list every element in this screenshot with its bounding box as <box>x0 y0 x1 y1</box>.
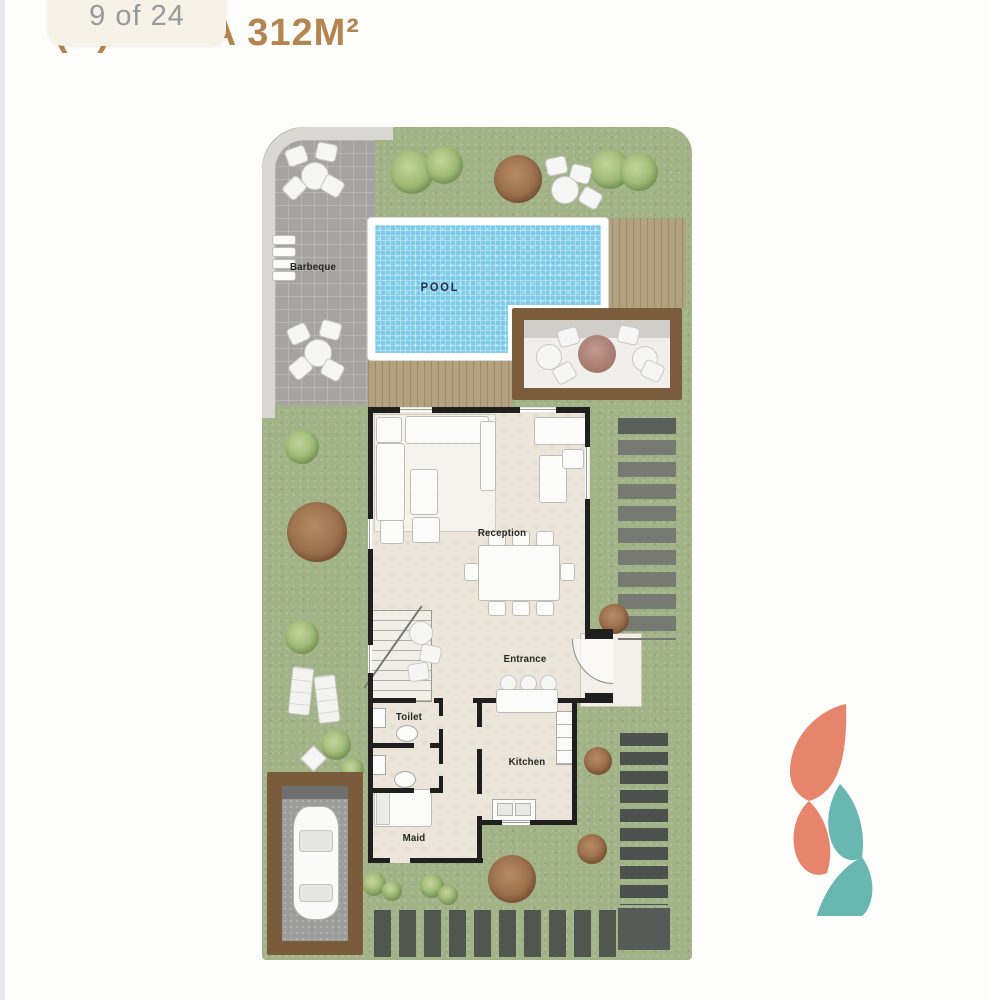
dining-chair <box>560 563 575 581</box>
garden-seat <box>544 155 568 177</box>
ottoman <box>412 517 440 543</box>
window <box>502 821 530 825</box>
stone-pad <box>618 908 670 950</box>
garden-seat <box>577 185 604 211</box>
round-table <box>409 621 433 645</box>
step <box>272 247 296 257</box>
wall <box>368 698 416 703</box>
step <box>272 235 296 245</box>
brown-tree <box>577 834 607 864</box>
ottoman <box>380 520 404 544</box>
stepping-stone <box>618 418 676 434</box>
wall <box>432 407 520 413</box>
sofa <box>534 417 588 445</box>
wall <box>368 407 373 519</box>
chair <box>616 324 640 346</box>
bar-counter <box>496 689 558 713</box>
dining-chair <box>512 601 530 616</box>
wall <box>572 703 577 820</box>
green-tree <box>321 730 351 760</box>
dining-chair <box>464 563 479 581</box>
brown-tree <box>494 155 542 203</box>
sun-lounger <box>288 666 315 716</box>
sofa <box>376 443 405 521</box>
green-tree <box>438 885 458 905</box>
wall <box>477 749 482 794</box>
wall <box>410 858 483 863</box>
wall <box>439 729 443 743</box>
dining-chair <box>488 601 506 616</box>
garden-table <box>551 176 579 204</box>
page-counter-label: 9 of 24 <box>48 0 226 33</box>
toilet-wc <box>396 725 418 742</box>
pink-tree <box>578 335 616 373</box>
wall <box>368 788 414 793</box>
wall <box>368 743 414 748</box>
pillow <box>376 791 390 825</box>
sink-basin <box>497 803 513 816</box>
green-tree <box>285 620 319 654</box>
window <box>368 645 372 673</box>
brown-tree <box>287 502 347 562</box>
chair <box>407 662 430 683</box>
side-table <box>562 449 584 469</box>
wall <box>477 816 482 863</box>
wall <box>530 820 577 825</box>
green-tree <box>382 881 402 901</box>
wall <box>368 549 373 645</box>
stepping-stone-path <box>618 418 676 640</box>
car-rear-window <box>299 884 333 902</box>
sink-basin <box>515 803 531 816</box>
dining-chair <box>536 601 554 616</box>
pool-label: POOL <box>403 280 477 294</box>
brown-tree <box>584 747 612 775</box>
chair <box>556 326 581 349</box>
wall <box>439 748 443 764</box>
wall <box>439 776 443 788</box>
toilet-label: Toilet <box>377 711 441 723</box>
brand-logo <box>780 698 885 916</box>
garage-entry-strip <box>282 786 348 799</box>
dining-table <box>478 545 560 601</box>
sofa <box>405 416 489 444</box>
wall <box>477 703 482 727</box>
logo-coral-shape <box>794 801 831 875</box>
green-tree <box>285 430 319 464</box>
car-windshield <box>299 830 333 852</box>
logo-teal-shape <box>828 784 863 860</box>
window <box>585 447 589 499</box>
stepping-stone-path <box>620 733 668 905</box>
coffee-table <box>410 469 438 515</box>
wood-deck <box>598 218 686 308</box>
reception-label: Reception <box>456 527 548 539</box>
pergola-seating <box>524 320 670 388</box>
scrollbar[interactable] <box>0 0 5 1000</box>
sun-lounger <box>313 674 341 724</box>
window <box>400 408 432 412</box>
pool-water <box>375 305 508 353</box>
wood-deck <box>368 360 512 407</box>
paver-row <box>374 910 620 957</box>
kitchen-label: Kitchen <box>490 756 564 768</box>
window <box>520 408 556 412</box>
car <box>293 806 339 920</box>
brown-tree <box>488 855 536 903</box>
green-tree <box>425 146 463 184</box>
wall <box>430 788 443 793</box>
floor-plan: Barbeque POOL <box>262 127 692 960</box>
barbeque-label: Barbeque <box>272 261 355 273</box>
logo-coral-shape <box>790 704 846 801</box>
tv-console <box>480 421 496 491</box>
entrance-label: Entrance <box>485 653 564 665</box>
side-table <box>376 417 402 443</box>
wall <box>585 407 590 447</box>
wall <box>585 629 613 639</box>
wall <box>585 499 590 633</box>
wall <box>368 858 390 863</box>
window <box>368 519 372 549</box>
maid-label: Maid <box>377 832 451 844</box>
page-counter-badge: 9 of 24 <box>48 0 226 46</box>
green-tree <box>620 153 658 191</box>
toilet-wc <box>394 771 416 788</box>
